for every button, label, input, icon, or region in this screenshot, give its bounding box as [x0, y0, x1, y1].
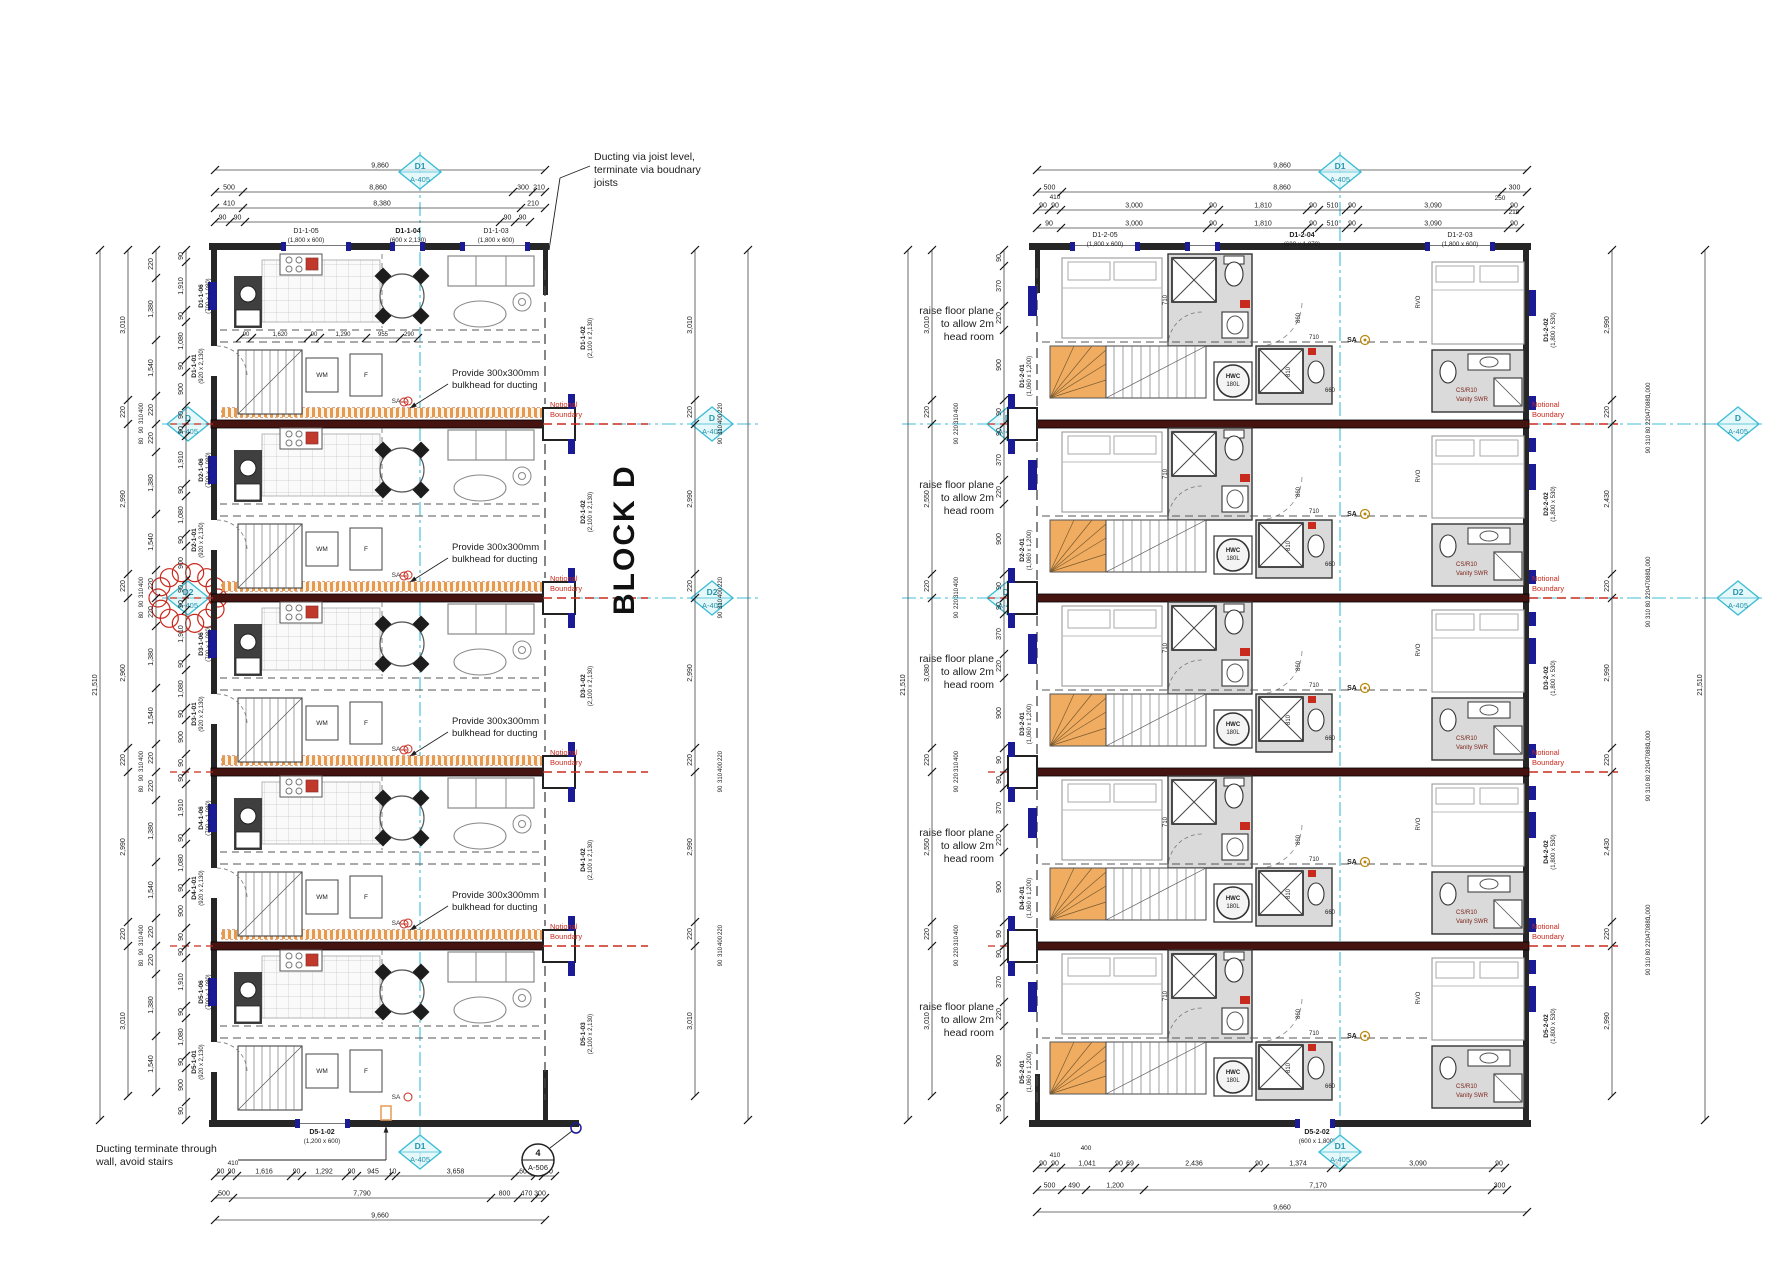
- dim-value: 810: [1286, 1062, 1292, 1073]
- window-jamb: [1529, 612, 1536, 626]
- sink-bowl: [240, 808, 256, 824]
- dim-value: 220: [120, 406, 127, 418]
- dim-value: 860: [1296, 660, 1302, 671]
- dim-value: 90: [1495, 1161, 1503, 1168]
- line: [410, 906, 448, 930]
- dim-value: 1,290: [335, 332, 351, 338]
- dim-value: 1,540: [148, 1055, 155, 1073]
- dim-value: 900: [178, 1079, 185, 1091]
- dim-value: 1,616: [255, 1169, 273, 1176]
- hwc-cylinder: [1217, 539, 1249, 571]
- wc-pan: [1225, 610, 1243, 634]
- notional-boundary-label: Boundary: [550, 584, 582, 593]
- dim-value: 90: [718, 959, 724, 966]
- washing-machine-label: WM: [316, 372, 328, 379]
- hwc-label: 180L: [1226, 382, 1240, 388]
- dim-value: 210: [1509, 209, 1520, 216]
- raise-floor-annotation: head room: [944, 505, 994, 517]
- dim-value: 90: [1646, 968, 1652, 975]
- sa-symbol: [404, 1093, 412, 1101]
- party-wall: [1011, 594, 1529, 602]
- dim-value: 90: [1646, 446, 1652, 453]
- dim-value: 220: [718, 402, 724, 413]
- notional-boundary-label: Notional: [550, 574, 578, 583]
- dim-value: 660: [1325, 910, 1336, 916]
- dim-value: 900: [996, 707, 1003, 719]
- dim-value: 400: [139, 750, 145, 761]
- dim-value: 220: [924, 928, 931, 940]
- grid-marker-d: DA-405: [1717, 407, 1759, 441]
- dim-value: 880: [1646, 568, 1652, 579]
- dim-value: 810: [1286, 888, 1292, 899]
- dim-value: 90: [139, 948, 145, 955]
- opening-size: (920 x 2,130): [199, 1044, 205, 1079]
- dim-value: 21,510: [92, 674, 99, 696]
- dim-value: 90: [1646, 620, 1652, 627]
- opening-label: D1-1-02: [580, 326, 587, 350]
- dim-value: 400: [718, 935, 724, 946]
- dim-value: 90: [178, 411, 185, 419]
- grid-marker-d2: D2A-405: [1717, 581, 1759, 615]
- dim-value: 710: [1309, 335, 1320, 341]
- sa-label: SA: [392, 398, 401, 405]
- sa-label: SA: [1347, 511, 1357, 518]
- opening-size: (1,060 x 1,200): [1027, 704, 1033, 744]
- dim-value: 370: [996, 280, 1003, 292]
- dim-value: 370: [996, 976, 1003, 988]
- dim-value: 90: [178, 884, 185, 892]
- dim-value: 3,010: [120, 1012, 127, 1030]
- cs-label: CS/R10: [1456, 562, 1478, 568]
- notional-boundary-label: Notional: [1532, 400, 1560, 409]
- dim-value: 69: [1126, 1161, 1134, 1168]
- dim-value: 310: [1646, 782, 1652, 793]
- fw-marker: [1240, 474, 1250, 482]
- bulkhead-annotation: bulkhead for ducting: [452, 902, 538, 913]
- desk-chair-hub: [519, 473, 526, 480]
- dim-value: 410: [1050, 1152, 1061, 1159]
- bed: [1432, 784, 1524, 866]
- fridge-label: F: [364, 894, 368, 901]
- dim-value: 90: [217, 1169, 225, 1176]
- dim-value: 410: [228, 1160, 239, 1167]
- grid-marker-d1: D1A-405: [399, 155, 441, 189]
- dining-chair: [413, 616, 430, 633]
- dim-value: 1,540: [148, 881, 155, 899]
- dim-value: 710: [1163, 990, 1169, 1001]
- dim-value: 220: [718, 750, 724, 761]
- dim-value: 210: [527, 201, 539, 208]
- dim-value: 290: [404, 332, 415, 338]
- dim-value: 400: [139, 576, 145, 587]
- hwc-cylinder: [1217, 887, 1249, 919]
- cloud-arc: [186, 564, 204, 582]
- party-notch: [1008, 582, 1037, 614]
- dim-value: 400: [954, 402, 960, 413]
- washing-machine-label: WM: [316, 1068, 328, 1075]
- notional-boundary-label: Boundary: [1532, 758, 1564, 767]
- opening-label: D1-2-02: [1543, 318, 1550, 342]
- wall-opening: [1300, 1120, 1330, 1127]
- dim-value: 860: [1296, 834, 1302, 845]
- grid-marker-d2: D2A-405: [691, 581, 733, 615]
- hwc-cylinder: [1217, 365, 1249, 397]
- opening-size: (1,200 x 600): [304, 1138, 340, 1145]
- opening-label: D3-1-01: [191, 702, 198, 726]
- washing-machine-label: WM: [316, 894, 328, 901]
- dim-value: 400: [954, 576, 960, 587]
- dim-value: 3,090: [1424, 221, 1442, 228]
- dim-value: 90: [1309, 203, 1317, 210]
- dining-chair: [413, 308, 430, 325]
- raise-floor-annotation: to allow 2m: [941, 318, 994, 330]
- bed: [1432, 610, 1524, 692]
- dim-value: 220: [148, 258, 155, 270]
- hwc-label: HWC: [1226, 1070, 1241, 1076]
- dim-value: 90: [504, 215, 512, 222]
- sofa: [448, 952, 534, 982]
- bulkhead-annotation: Provide 300x300mm: [452, 368, 539, 379]
- dim-value: 90: [1255, 1161, 1263, 1168]
- section-marker: 4A-506: [522, 1123, 581, 1176]
- dim-value: 810: [1286, 366, 1292, 377]
- wc-pan: [1225, 262, 1243, 286]
- bulkhead-annotation: Provide 300x300mm: [452, 890, 539, 901]
- sa-symbol-dot: [1364, 1035, 1367, 1038]
- dim-value: 1,910: [178, 277, 185, 295]
- opening-label: D3-2-02: [1543, 666, 1550, 690]
- desk-chair: [513, 467, 531, 485]
- grid-sheet: A-405: [1330, 1155, 1350, 1164]
- dining-chair: [413, 442, 430, 459]
- dim-value: 90: [954, 437, 960, 444]
- window-jamb: [346, 242, 351, 251]
- opening-size: (600 x 2,130): [390, 237, 426, 244]
- stair-winder: [1050, 1042, 1106, 1094]
- vanity: [1468, 528, 1510, 544]
- window-jamb: [1008, 916, 1015, 931]
- window-marker: [1529, 464, 1536, 490]
- dim-value: 220: [687, 580, 694, 592]
- grid-id: D1: [1335, 1141, 1346, 1151]
- dim-value: 7,170: [1309, 1183, 1327, 1190]
- party-notch: [1008, 756, 1037, 788]
- dim-value: 470: [521, 1191, 533, 1198]
- bed: [1062, 432, 1162, 512]
- hwc-label: HWC: [1226, 374, 1241, 380]
- dim-value: 310: [139, 587, 145, 598]
- dim-value: 1,374: [1289, 1161, 1307, 1168]
- party-notch: [1008, 930, 1037, 962]
- fw-marker: [1308, 870, 1316, 877]
- dim-value: 1,380: [148, 822, 155, 840]
- washing-machine-label: WM: [316, 720, 328, 727]
- dim-value: 90: [1309, 221, 1317, 228]
- dim-value: 220: [954, 424, 960, 435]
- dim-value: 220: [148, 752, 155, 764]
- dim-value: 1,810: [1254, 203, 1272, 210]
- dim-value: 90: [996, 950, 1003, 958]
- rvo-label: RVO: [1416, 295, 1422, 308]
- door-opening: [211, 868, 217, 898]
- dishwasher: [236, 310, 260, 326]
- dim-value: 800: [499, 1191, 511, 1198]
- fw-marker: [1308, 1044, 1316, 1051]
- dim-value: 90: [954, 611, 960, 618]
- grid-id: D: [709, 413, 715, 423]
- window-jamb: [1008, 394, 1015, 409]
- window-marker: [1529, 290, 1536, 316]
- wc-pan: [1440, 361, 1456, 383]
- dim-value: 90: [1039, 203, 1047, 210]
- vanity-label: Vanity SWR: [1456, 397, 1489, 403]
- dim-value: 1,910: [178, 973, 185, 991]
- dim-value: 1,041: [1078, 1161, 1096, 1168]
- raise-floor-annotation: to allow 2m: [941, 840, 994, 852]
- dim-value: 300: [517, 185, 529, 192]
- dim-value: 90: [178, 759, 185, 767]
- desk-chair-hub: [519, 647, 526, 654]
- sa-symbol-dot: [1364, 339, 1367, 342]
- dim-value: 660: [1325, 388, 1336, 394]
- bed: [1432, 262, 1524, 344]
- opening-label: D5-1-03: [580, 1022, 587, 1046]
- dim-value: 1,080: [178, 1028, 185, 1046]
- dim-value: 310: [718, 772, 724, 783]
- grid-marker-d1: D1A-405: [1319, 155, 1361, 189]
- dim-value: 860: [1296, 1008, 1302, 1019]
- dim-value: 1,200: [1106, 1183, 1124, 1190]
- window-jamb: [1185, 242, 1190, 251]
- wc-pan: [1440, 1057, 1456, 1079]
- bulkhead-annotation: Provide 300x300mm: [452, 542, 539, 553]
- opening-label: D5-1-06: [198, 980, 205, 1004]
- dim-value: 220: [687, 928, 694, 940]
- dim-value: 3,010: [687, 1012, 694, 1030]
- party-wall: [1011, 420, 1529, 428]
- stair-winder: [1050, 346, 1106, 398]
- opening-label: D4-2-02: [1543, 840, 1550, 864]
- dim-value: 1,380: [148, 648, 155, 666]
- dim-value: 8,860: [369, 185, 387, 192]
- window-jamb: [1215, 242, 1220, 251]
- dim-value: 3,010: [924, 316, 931, 334]
- dim-value: 90: [228, 1169, 236, 1176]
- grid-id: D1: [415, 1141, 426, 1151]
- dim-value: 9,660: [371, 1213, 389, 1220]
- door-opening: [211, 346, 217, 376]
- dim-value: 10: [389, 1169, 397, 1176]
- wc-pan: [1440, 883, 1456, 905]
- dim-value: 2,990: [687, 838, 694, 856]
- window-jamb: [568, 787, 575, 802]
- opening-label: D1-2-03: [1447, 232, 1472, 239]
- fridge-label: F: [364, 546, 368, 553]
- dishwasher: [236, 1006, 260, 1022]
- window-jamb: [1008, 439, 1015, 454]
- dim-value: 90: [139, 600, 145, 607]
- window-jamb: [568, 613, 575, 628]
- opening-label: D1-1-05: [293, 228, 318, 235]
- notional-boundary-label: Notional: [550, 922, 578, 931]
- sa-symbol-dot: [1364, 861, 1367, 864]
- dim-value: 220: [996, 834, 1003, 846]
- ducting-joist-annotation: terminate via boudnary: [594, 164, 702, 176]
- window-marker: [1028, 982, 1037, 1012]
- fw-marker: [1308, 348, 1316, 355]
- hwc-label: 180L: [1226, 904, 1240, 910]
- grid-id: D1: [415, 161, 426, 171]
- dining-chair: [413, 790, 430, 807]
- section-sheet: A-506: [528, 1163, 548, 1172]
- dim-value: 90: [178, 710, 185, 718]
- dim-value: 400: [954, 924, 960, 935]
- dim-value: 900: [178, 383, 185, 395]
- dim-value: 90: [996, 602, 1003, 610]
- opening-label: D2-2-01: [1019, 538, 1026, 562]
- sa-label: SA: [1347, 859, 1357, 866]
- bulkhead-annotation: Provide 300x300mm: [452, 716, 539, 727]
- opening-size: (1,060 x 1,200): [1027, 878, 1033, 918]
- grid-marker-d: DA-405: [691, 407, 733, 441]
- window-jamb: [1008, 742, 1015, 757]
- dim-value: 1,910: [178, 625, 185, 643]
- dim-value: 220: [148, 578, 155, 590]
- opening-size: (700 x 1,080): [206, 452, 212, 487]
- window-marker: [1028, 808, 1037, 838]
- dim-value: 490: [1068, 1183, 1080, 1190]
- wall-opening: [395, 243, 420, 250]
- dim-value: 3,010: [120, 316, 127, 334]
- window-jamb: [460, 242, 465, 251]
- bulkhead-annotation: bulkhead for ducting: [452, 554, 538, 565]
- opening-size: (920 x 2,130): [199, 522, 205, 557]
- opening-label: D1-2-05: [1092, 232, 1117, 239]
- raise-floor-annotation: raise floor plane: [919, 653, 994, 665]
- opening-size: (1,060 x 1,200): [1027, 356, 1033, 396]
- dim-value: 90: [178, 362, 185, 370]
- notional-boundary-label: Notional: [550, 400, 578, 409]
- wc-pan: [1308, 361, 1324, 383]
- hwc-label: HWC: [1226, 896, 1241, 902]
- window-jamb: [1008, 961, 1015, 976]
- dim-value: 90: [996, 776, 1003, 784]
- dim-value: 2,990: [1604, 316, 1611, 334]
- dim-value: 90: [1045, 221, 1053, 228]
- ducting-terminate-annotation: Ducting terminate through: [96, 1143, 217, 1155]
- notional-boundary-label: Boundary: [550, 932, 582, 941]
- drawing-sheet: DA-405DA-405DA-405DA-405D2A-405D2A-405D2…: [0, 0, 1782, 1280]
- dim-value: 3,000: [1125, 221, 1143, 228]
- dim-value: 400: [718, 587, 724, 598]
- opening-size: (1,800 x 530): [1551, 1008, 1557, 1043]
- opening-label: D4-1-01: [191, 876, 198, 900]
- dim-value: 90: [178, 312, 185, 320]
- ducting-terminate-annotation: wall, avoid stairs: [95, 1156, 173, 1168]
- opening-label: D1-2-01: [1019, 364, 1026, 388]
- hwc-label: HWC: [1226, 722, 1241, 728]
- dim-value: 1,080: [178, 332, 185, 350]
- window-jamb: [1529, 960, 1536, 974]
- window-jamb: [345, 1119, 350, 1128]
- opening-size: (2,100 x 2,130): [588, 1014, 594, 1054]
- dim-value: 310: [1646, 956, 1652, 967]
- ducting-joist-annotation: joists: [593, 177, 618, 189]
- opening-size: (1,800 x 530): [1551, 834, 1557, 869]
- party-wall: [211, 420, 575, 428]
- sa-label: SA: [1347, 337, 1357, 344]
- dishwasher: [236, 832, 260, 848]
- dim-value: 90: [996, 408, 1003, 416]
- dim-value: 220: [687, 406, 694, 418]
- wall-opening: [1190, 243, 1215, 250]
- dim-value: 9,860: [371, 163, 389, 170]
- fw-marker: [1240, 996, 1250, 1004]
- party-wall: [211, 594, 575, 602]
- vanity-label: Vanity SWR: [1456, 745, 1489, 751]
- party-wall: [1011, 942, 1529, 950]
- dim-value: 9,860: [1273, 163, 1291, 170]
- dining-chair: [413, 268, 430, 285]
- dim-value: 80: [1646, 600, 1652, 607]
- vanity: [1468, 354, 1510, 370]
- bulkhead-annotation: bulkhead for ducting: [452, 380, 538, 391]
- dim-value: 1,540: [148, 707, 155, 725]
- dim-value: 955: [378, 332, 389, 338]
- window-jamb: [568, 961, 575, 976]
- dim-value: 90: [1646, 794, 1652, 801]
- fw-marker: [1240, 648, 1250, 656]
- rvo-label: RVO: [1416, 817, 1422, 830]
- dim-value: 810: [1286, 714, 1292, 725]
- window-jamb: [1135, 242, 1140, 251]
- dishwasher: [236, 658, 260, 674]
- stove-control: [306, 780, 318, 792]
- window-marker: [1529, 986, 1536, 1012]
- dim-value: 310: [718, 598, 724, 609]
- opening-size: (1,800 x 530): [1551, 486, 1557, 521]
- dim-value: 2,430: [1604, 838, 1611, 856]
- dim-value: 250: [1495, 195, 1506, 202]
- window-jamb: [1490, 242, 1495, 251]
- dim-value: 90: [996, 756, 1003, 764]
- dim-value: 1,080: [178, 680, 185, 698]
- dim-value: 90: [1039, 1161, 1047, 1168]
- dim-value: 80: [139, 611, 145, 618]
- dim-value: 660: [1325, 736, 1336, 742]
- opening-size: (1,060 x 1,200): [1027, 1052, 1033, 1092]
- dim-value: 220: [924, 754, 931, 766]
- fw-marker: [1240, 822, 1250, 830]
- wc-pan: [1308, 1057, 1324, 1079]
- dim-value: 90: [1115, 1161, 1123, 1168]
- door-opening: [211, 520, 217, 550]
- wall-bottom: [209, 1120, 579, 1127]
- window-jamb: [281, 242, 286, 251]
- dim-value: 90: [996, 930, 1003, 938]
- opening-label: D1-1-03: [483, 228, 508, 235]
- dim-value: 2,430: [1604, 490, 1611, 508]
- bed: [1062, 606, 1162, 686]
- dim-value: 310: [139, 761, 145, 772]
- opening-size: (700 x 1,080): [206, 278, 212, 313]
- dim-value: 900: [996, 359, 1003, 371]
- notional-boundary-label: Boundary: [550, 410, 582, 419]
- dim-value: 80: [139, 437, 145, 444]
- opening-size: (1,800 x 600): [1442, 241, 1478, 248]
- block-title: BLOCK D: [608, 430, 642, 650]
- opening-label: D1-1-06: [198, 284, 205, 308]
